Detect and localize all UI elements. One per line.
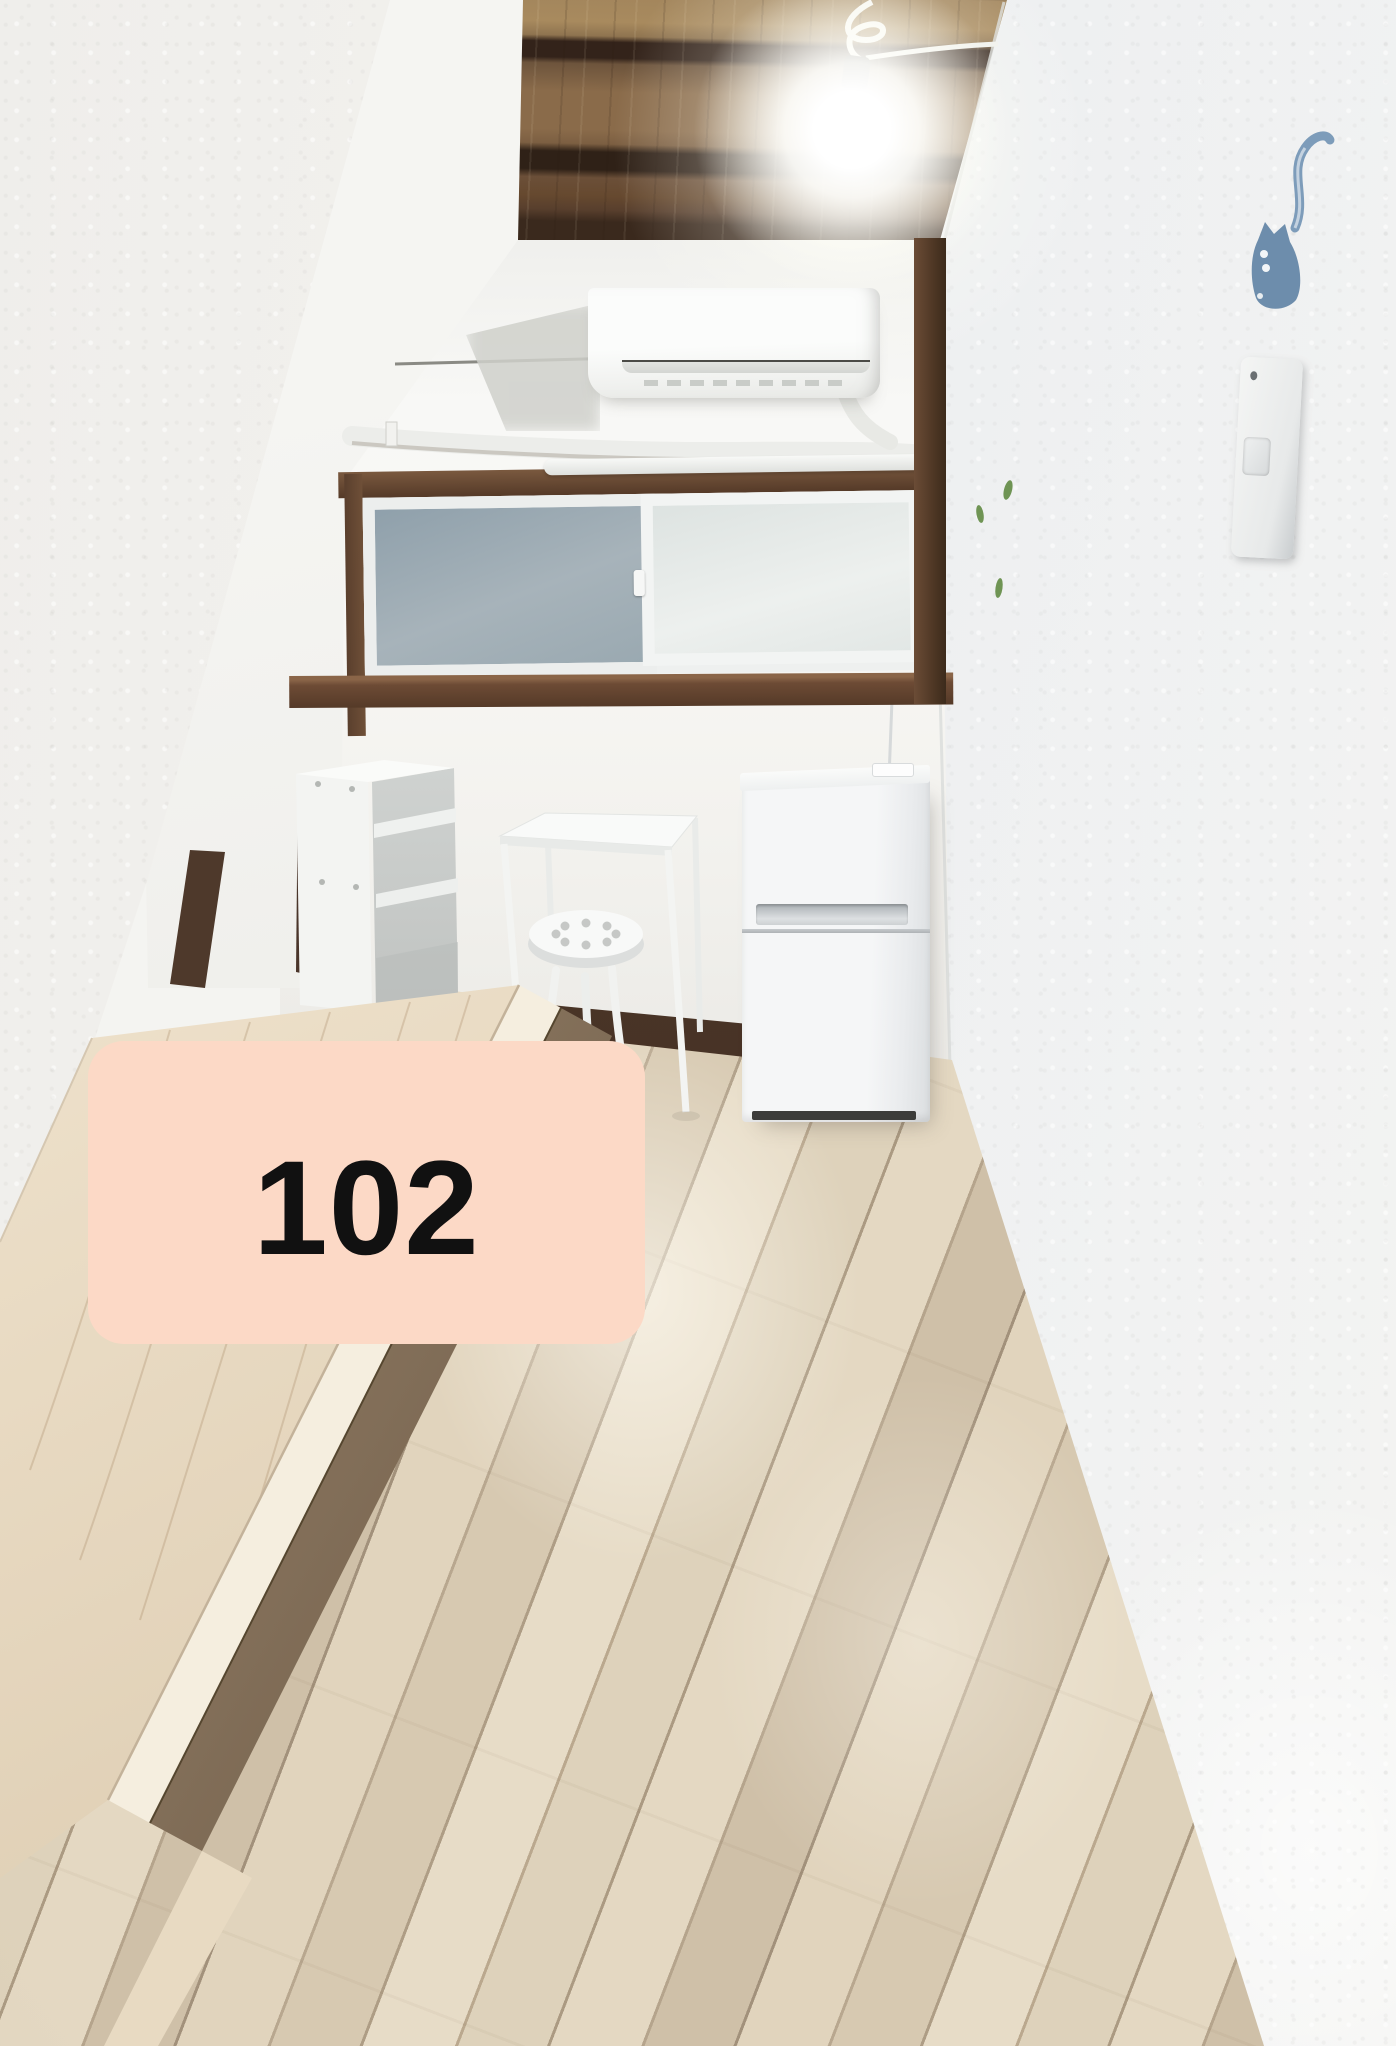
room-number-text: 102 (253, 1132, 480, 1285)
room-number-badge: 102 (88, 1041, 645, 1344)
bed-lower-rail (104, 1851, 252, 2046)
bed-layer (0, 0, 1396, 2046)
room-photo: 102 (0, 0, 1396, 2046)
